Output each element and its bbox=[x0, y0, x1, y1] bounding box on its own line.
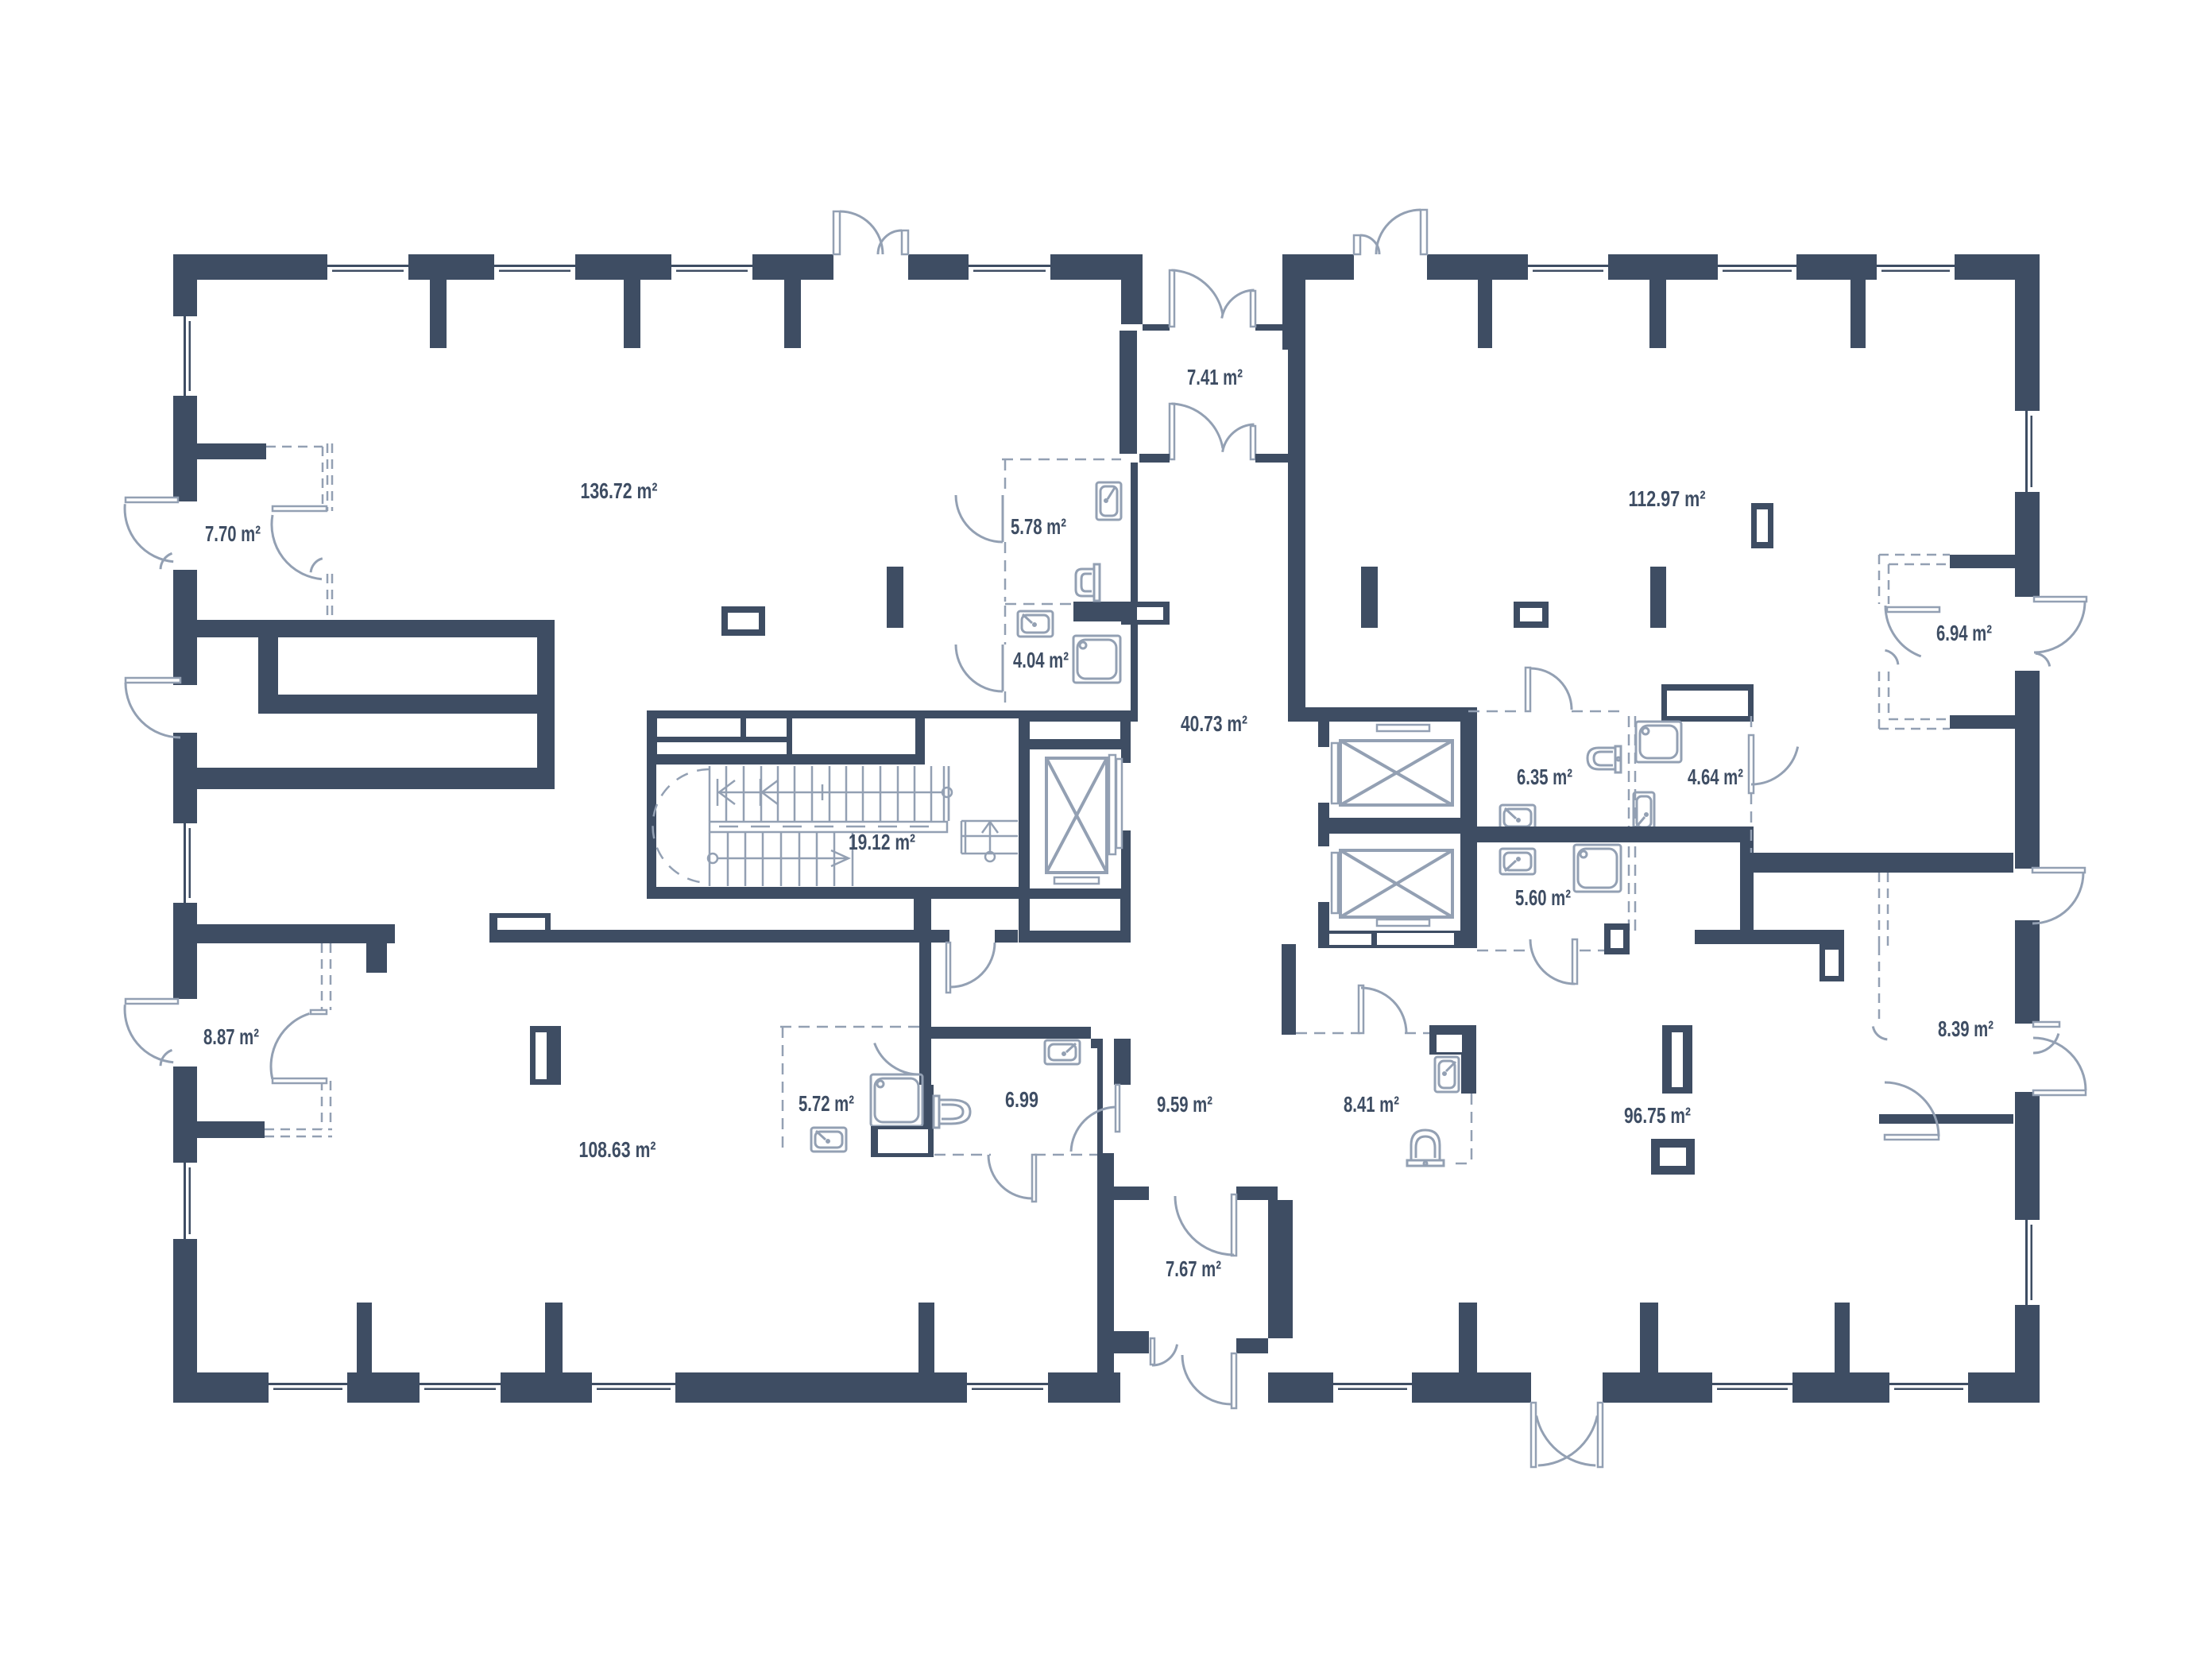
svg-text:8.39 m²: 8.39 m² bbox=[1938, 1016, 1994, 1041]
svg-text:96.75 m²: 96.75 m² bbox=[1624, 1103, 1691, 1128]
svg-text:108.63 m²: 108.63 m² bbox=[579, 1137, 656, 1162]
svg-text:8.41 m²: 8.41 m² bbox=[1344, 1092, 1399, 1117]
svg-text:112.97 m²: 112.97 m² bbox=[1629, 486, 1706, 511]
svg-text:6.35 m²: 6.35 m² bbox=[1517, 765, 1572, 789]
svg-text:5.72 m²: 5.72 m² bbox=[799, 1091, 854, 1116]
svg-text:7.41 m²: 7.41 m² bbox=[1187, 365, 1243, 389]
svg-text:6.99: 6.99 bbox=[1005, 1087, 1038, 1112]
svg-text:5.78 m²: 5.78 m² bbox=[1011, 514, 1066, 539]
svg-text:5.60 m²: 5.60 m² bbox=[1515, 885, 1571, 910]
svg-text:7.67 m²: 7.67 m² bbox=[1166, 1256, 1221, 1281]
svg-text:40.73 m²: 40.73 m² bbox=[1181, 711, 1247, 736]
svg-text:6.94 m²: 6.94 m² bbox=[1936, 621, 1992, 645]
svg-text:19.12 m²: 19.12 m² bbox=[849, 830, 915, 854]
svg-text:4.64 m²: 4.64 m² bbox=[1688, 765, 1743, 789]
svg-text:9.59 m²: 9.59 m² bbox=[1157, 1092, 1212, 1117]
svg-text:136.72 m²: 136.72 m² bbox=[581, 478, 658, 503]
svg-text:8.87 m²: 8.87 m² bbox=[203, 1024, 259, 1049]
svg-text:4.04 m²: 4.04 m² bbox=[1013, 648, 1069, 672]
svg-text:7.70 m²: 7.70 m² bbox=[205, 521, 261, 546]
